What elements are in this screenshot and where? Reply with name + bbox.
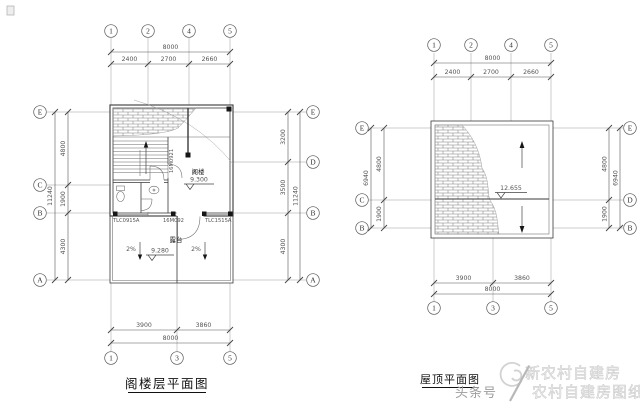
- column: [171, 212, 176, 217]
- dim-text: 11240: [47, 186, 54, 206]
- grid-label: D: [310, 158, 316, 167]
- dim-text: 1900: [376, 206, 383, 222]
- blueprint-canvas: 1 2 4 5 E C B A E D B A 1 3: [0, 0, 640, 405]
- grid-label: E: [311, 108, 316, 117]
- sink-drain: [153, 189, 155, 191]
- level-marker: [495, 193, 527, 199]
- column: [228, 212, 233, 217]
- grid-label: 5: [549, 41, 553, 50]
- roof-hatch: [435, 125, 499, 234]
- dim-text: 4300: [60, 239, 67, 255]
- dim-text: 4800: [602, 156, 609, 172]
- slope-arrow-down-head: [520, 226, 525, 233]
- staircase: [113, 137, 168, 176]
- level-marker: [146, 255, 174, 261]
- right-plan-grid-lines: [369, 53, 623, 301]
- bathroom: [113, 166, 168, 213]
- dim-text: 4300: [280, 239, 287, 255]
- dim-text: 8000: [163, 335, 179, 342]
- dim-lines: [55, 52, 300, 343]
- corner-artifact: [7, 6, 14, 15]
- grid-label: 2: [146, 27, 150, 36]
- grid-label: 5: [228, 27, 232, 36]
- dim-text: 8000: [485, 55, 501, 62]
- grid-label: 3: [175, 354, 179, 363]
- left-plan-caption: 阁楼层平面图: [125, 376, 209, 393]
- grid-label: A: [310, 276, 316, 285]
- window-tag: TLC0915A: [112, 218, 140, 224]
- level-text: 9.300: [190, 177, 208, 184]
- dim-text: 6940: [613, 170, 620, 186]
- left-plan: 1 2 4 5 E C B A E D B A 1 3: [34, 25, 320, 393]
- dim-text: 2400: [445, 69, 461, 76]
- terrace-label: 露台: [170, 235, 183, 244]
- grid-label: B: [359, 224, 364, 233]
- plan-title: 阁楼层平面图: [125, 376, 209, 391]
- column: [186, 153, 191, 158]
- dim-text: 3860: [196, 322, 212, 329]
- grid-lines-left: [47, 112, 110, 280]
- grid-label: 5: [549, 304, 553, 313]
- grid-label: D: [627, 196, 633, 205]
- dim-text: 4800: [60, 141, 67, 157]
- left-plan-grid-bubbles: 1 2 4 5 E C B A E D B A 1 3: [34, 25, 320, 365]
- grid-label: 4: [509, 41, 513, 50]
- dim-text: 8000: [485, 286, 501, 293]
- door-tag: 16M0921: [169, 149, 175, 173]
- dim-lines: [371, 63, 620, 294]
- left-plan-grid-lines: [47, 38, 306, 351]
- dim-text: 1900: [602, 206, 609, 222]
- right-plan: 1 2 4 5 E C B E D B 1 3 5: [356, 39, 637, 388]
- grid-label: C: [37, 181, 42, 190]
- grid-label: E: [628, 124, 633, 133]
- grid-label: A: [37, 276, 43, 285]
- watermark-brand: 新农村自建房: [525, 365, 621, 382]
- dim-text: 1900: [60, 191, 67, 207]
- grid-label: E: [38, 108, 43, 117]
- level-marker: [184, 184, 214, 190]
- watermark-series: 农村自建房图纸: [532, 384, 640, 401]
- column: [202, 212, 207, 217]
- shower-door-swing: [141, 199, 152, 211]
- grid-label: 1: [432, 41, 436, 50]
- dim-text: 2400: [122, 56, 138, 63]
- slope-arrow-up-head: [520, 141, 525, 148]
- dim-text: 3900: [456, 275, 472, 282]
- roof-hatch: [113, 108, 196, 136]
- grid-label: 1: [109, 354, 113, 363]
- grid-label: B: [310, 209, 315, 218]
- watermark-logo-icon: [501, 363, 522, 386]
- watermark: 新农村自建房 头条号 农村自建房图纸: [455, 363, 640, 401]
- left-plan-dimension-lines: [52, 49, 303, 346]
- dim-text: 2700: [161, 56, 177, 63]
- column: [113, 212, 118, 217]
- right-plan-dimension-lines: [368, 60, 623, 297]
- level-text: 12.655: [500, 185, 522, 192]
- room-label: 阁楼: [192, 167, 206, 176]
- left-plan-dimension-text: 8000 2400 2700 2660 11240 4800 1900 4300…: [47, 44, 300, 342]
- slope-arrow-right-head: [203, 255, 207, 261]
- dim-text: 3500: [280, 180, 287, 196]
- bottom-wall: [113, 211, 233, 240]
- grid-label: 1: [109, 27, 113, 36]
- dim-text: 2660: [523, 69, 539, 76]
- grid-label: 3: [491, 304, 495, 313]
- dim-text: 8000: [163, 44, 179, 51]
- watermark-source: 头条号: [455, 385, 497, 400]
- level-text: 9.280: [151, 248, 169, 255]
- grid-label: 2: [469, 41, 473, 50]
- grid-label: B: [627, 224, 632, 233]
- bathroom-door-swing: [150, 166, 164, 180]
- dim-ticks: [52, 49, 303, 346]
- grid-label: 1: [432, 304, 436, 313]
- right-plan-grid-bubbles: 1 2 4 5 E C B E D B 1 3 5: [356, 39, 637, 315]
- right-plan-dimension-text: 8000 2400 2700 2660 6940 4800 1900 4800 …: [363, 55, 620, 293]
- grid-label: 5: [228, 354, 232, 363]
- door-opening: [177, 211, 204, 218]
- window-tag: TLC1515A: [204, 218, 232, 224]
- dim-text: 3200: [280, 129, 287, 145]
- sink: [149, 186, 159, 194]
- dim-text: 2700: [483, 69, 499, 76]
- toilet-tank: [117, 186, 125, 191]
- column: [227, 107, 232, 112]
- dim-text: 11240: [293, 186, 300, 206]
- slope-arrow-left-head: [138, 255, 142, 261]
- grid-label: B: [37, 209, 42, 218]
- slope-text: 2%: [126, 246, 136, 253]
- dim-text: 4800: [376, 156, 383, 172]
- bathroom-wall: [113, 180, 168, 183]
- left-plan-drawing: [110, 100, 233, 283]
- grid-label: 4: [187, 27, 191, 36]
- dim-text: 6940: [363, 170, 370, 186]
- slope-text: 2%: [191, 246, 201, 253]
- door-tag: 16M092: [163, 218, 184, 224]
- grid-label: E: [360, 124, 365, 133]
- right-plan-drawing: 12.655: [431, 121, 553, 238]
- toilet-bowl: [117, 192, 125, 202]
- dim-ticks: [368, 60, 623, 297]
- grid-label: C: [359, 196, 364, 205]
- stair-treads: [113, 141, 168, 173]
- dim-text: 2660: [202, 56, 218, 63]
- dim-text: 3900: [136, 322, 152, 329]
- dim-text: 3860: [514, 275, 530, 282]
